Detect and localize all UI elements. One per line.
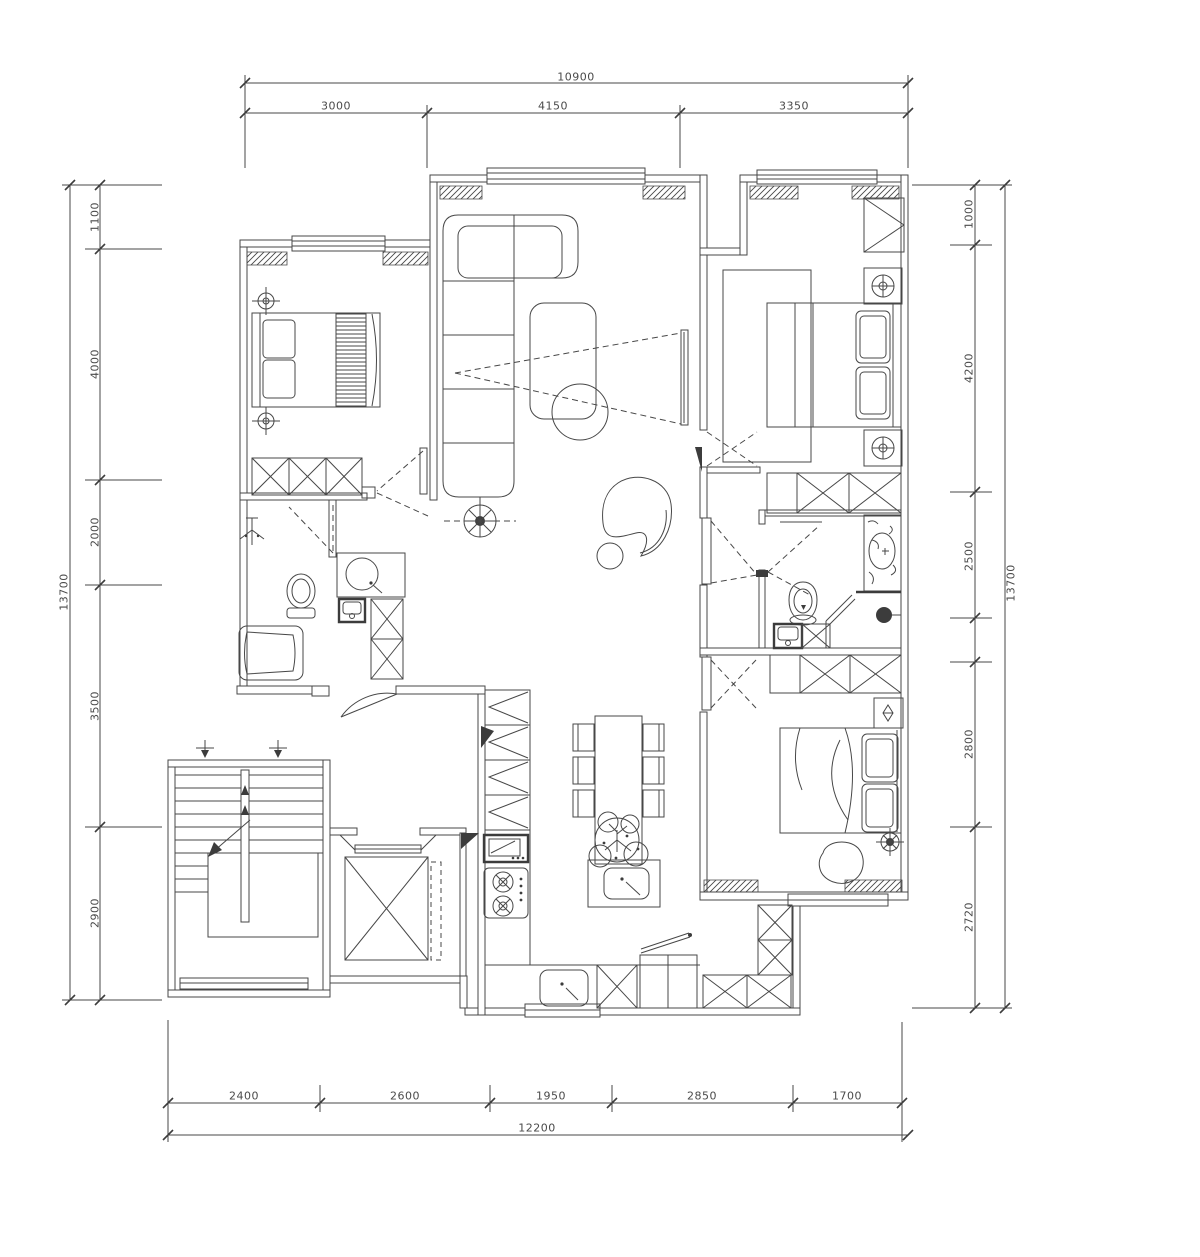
windows (180, 168, 902, 1017)
tv-sightline (455, 333, 681, 373)
vanity-basin (337, 553, 405, 597)
dim-right-seg-1: 1000 (963, 199, 976, 229)
dim-left-seg-3: 2000 (89, 517, 102, 547)
round-ottoman (552, 384, 608, 440)
floor-plan-canvas: 10900 3000 4150 3350 2400 2600 1950 2850… (0, 0, 1200, 1257)
stairwell-void (208, 853, 318, 937)
bed-blanket (336, 313, 366, 407)
dim-left-seg-5: 2900 (89, 898, 102, 928)
dimension-lines-left (62, 180, 162, 1005)
dim-bottom-seg-1: 2400 (229, 1090, 259, 1103)
bathroom-left (239, 505, 405, 717)
nightstand (874, 698, 903, 728)
cabinet-row (703, 975, 791, 1008)
dim-bottom-seg-4: 2850 (687, 1090, 717, 1103)
tv-sightline (455, 373, 681, 424)
living-room (443, 215, 702, 569)
toilet (287, 574, 315, 618)
dimension-lines-right (912, 180, 1012, 1013)
dim-right-seg-5: 2720 (963, 902, 976, 932)
dim-right-seg-3: 2500 (963, 541, 976, 571)
dim-right-total: 13700 (1005, 564, 1018, 602)
door-frame (756, 570, 768, 577)
dimension-lines-top (240, 75, 913, 168)
dim-left-seg-1: 1100 (89, 202, 102, 232)
entry-door-mark (481, 726, 494, 748)
bedroom-top-right (707, 198, 904, 513)
wardrobe (767, 473, 901, 513)
cabinet (597, 965, 637, 1008)
door-leaf-mark (695, 447, 702, 472)
dim-bottom-seg-3: 1950 (536, 1090, 566, 1103)
coffee-table (530, 303, 596, 419)
floor-lamp-icon (444, 497, 516, 537)
bathroom-door (312, 686, 397, 717)
bedroom-bottom-right (702, 655, 904, 883)
microwave (484, 835, 528, 862)
bedroom-top-left (252, 287, 428, 516)
dim-left-seg-2: 4000 (89, 349, 102, 379)
stair-entry-marks (196, 740, 287, 758)
corner-shelf (864, 198, 904, 252)
pantry-cabinets (485, 690, 530, 830)
staircase (175, 740, 323, 937)
dim-top-total: 10900 (557, 71, 595, 84)
elevator (340, 833, 479, 960)
counterweight (431, 862, 441, 960)
kitchen-dining (481, 690, 700, 1008)
dim-right-seg-2: 4200 (963, 353, 976, 383)
dim-bottom-seg-2: 2600 (390, 1090, 420, 1103)
washing-machine (774, 624, 802, 648)
refrigerator (640, 933, 697, 1008)
service-area (703, 905, 792, 1008)
dim-top-seg-3: 3350 (779, 100, 809, 113)
door-leaf (702, 657, 711, 710)
nightstand-lamp-icon (864, 430, 902, 466)
door-swing (289, 507, 333, 553)
gas-cooktop (484, 868, 528, 918)
wardrobe (770, 655, 901, 693)
armchair (597, 477, 671, 569)
dim-left-total: 13700 (58, 573, 71, 611)
sofa (443, 215, 578, 497)
dim-top-seg-2: 4150 (538, 100, 568, 113)
shower (826, 592, 901, 648)
dim-bottom-total: 12200 (518, 1122, 556, 1135)
ceiling-light-icon (252, 407, 280, 435)
dim-bottom-seg-5: 1700 (832, 1090, 862, 1103)
double-bed (780, 728, 901, 833)
vanity-marble (864, 515, 901, 591)
ceiling-light-icon (252, 287, 280, 315)
bed-foot-curve (372, 314, 377, 406)
tv (681, 330, 688, 425)
kitchen-sink (540, 970, 588, 1006)
bedroom-door (362, 448, 428, 516)
door-swing (768, 525, 820, 572)
armchair (819, 842, 863, 883)
tall-cabinet (758, 905, 792, 975)
entry-door-mark (461, 833, 479, 849)
nightstand-lamp-icon (864, 268, 902, 304)
dim-top-seg-1: 3000 (321, 100, 351, 113)
floor-plan-drawing (0, 0, 1200, 1257)
elevator-jambs (340, 835, 436, 850)
bathtub (239, 626, 303, 680)
bathroom-right (702, 515, 901, 648)
shower-drain-icon (876, 607, 892, 623)
double-bed (767, 303, 901, 427)
washing-machine (339, 599, 365, 622)
door-leaf (702, 518, 711, 584)
wardrobe (252, 458, 362, 495)
plant (589, 812, 648, 867)
tall-cabinet (371, 599, 403, 679)
dim-left-seg-4: 3500 (89, 691, 102, 721)
dim-right-seg-4: 2800 (963, 729, 976, 759)
toilet (789, 582, 817, 625)
